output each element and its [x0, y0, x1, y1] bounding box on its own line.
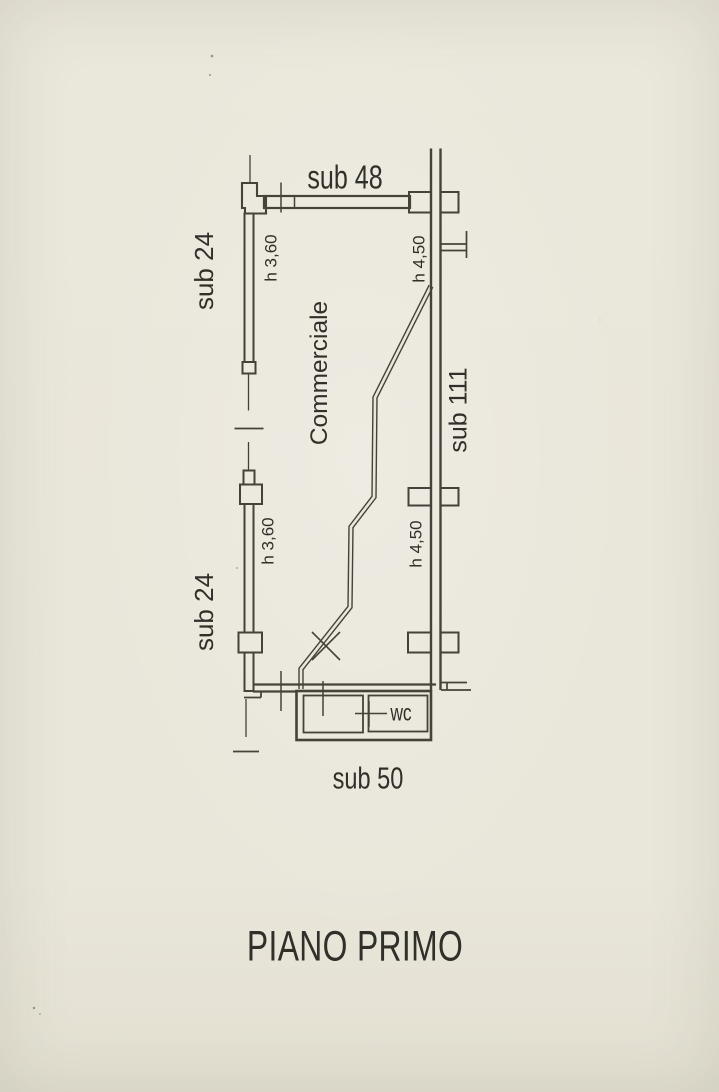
- scanned-floor-plan-page: sub 48 sub 24 h 3,60 h 4,50 Commerciale …: [0, 0, 719, 1092]
- label-sub-48: sub 48: [307, 161, 382, 194]
- label-sub-111: sub 111: [447, 367, 472, 452]
- label-sub-24-upper: sub 24: [191, 232, 217, 310]
- paper-specks: [33, 55, 601, 1015]
- label-height-360-lower: h 3,60: [260, 517, 277, 564]
- wall-stub-bottom-right: [441, 683, 471, 691]
- label-sub-50: sub 50: [333, 763, 404, 794]
- label-height-360-upper: h 3,60: [263, 234, 280, 281]
- label-wc: wc: [390, 702, 411, 725]
- page-title: PIANO PRIMO: [247, 926, 463, 969]
- wall-right: [431, 149, 441, 692]
- wall-stub-top-right: [441, 231, 467, 258]
- label-height-450-upper: h 4,50: [411, 235, 428, 282]
- corner-block-topleft: [242, 183, 266, 214]
- wall-right-top-blocks: [409, 192, 459, 213]
- wall-left-upper: [243, 214, 256, 374]
- door-tick-wc: [355, 701, 387, 727]
- label-height-450-lower: h 4,50: [408, 520, 425, 567]
- wall-right-pillars: [408, 488, 459, 653]
- break-mark-upper: [235, 374, 264, 471]
- label-room-commerciale: Commerciale: [308, 301, 333, 445]
- wall-left-lower: [233, 471, 262, 752]
- label-sub-24-lower: sub 24: [191, 573, 217, 651]
